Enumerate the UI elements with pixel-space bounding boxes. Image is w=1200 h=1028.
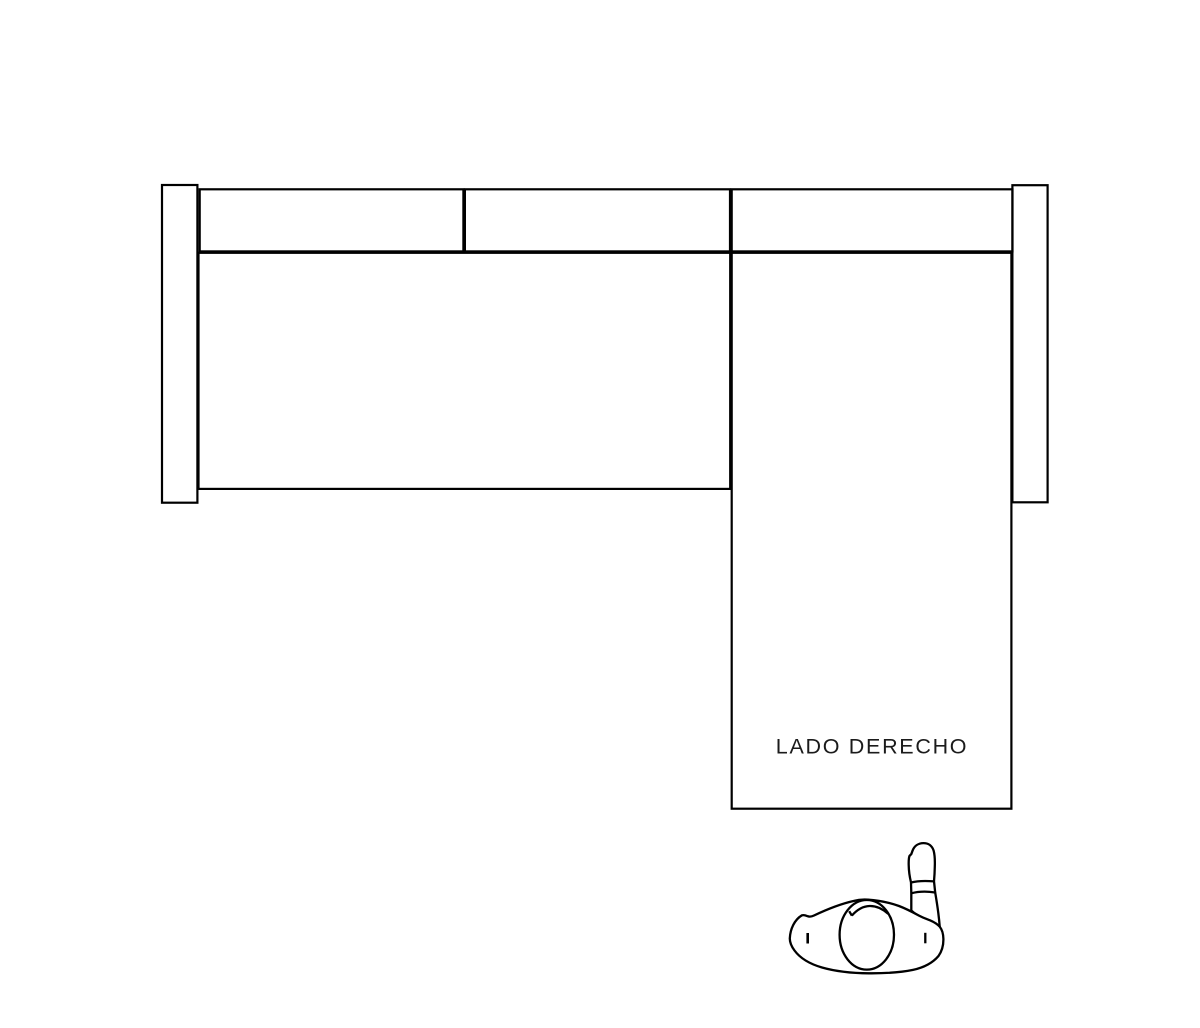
svg-text:LADO DERECHO: LADO DERECHO xyxy=(776,735,968,759)
